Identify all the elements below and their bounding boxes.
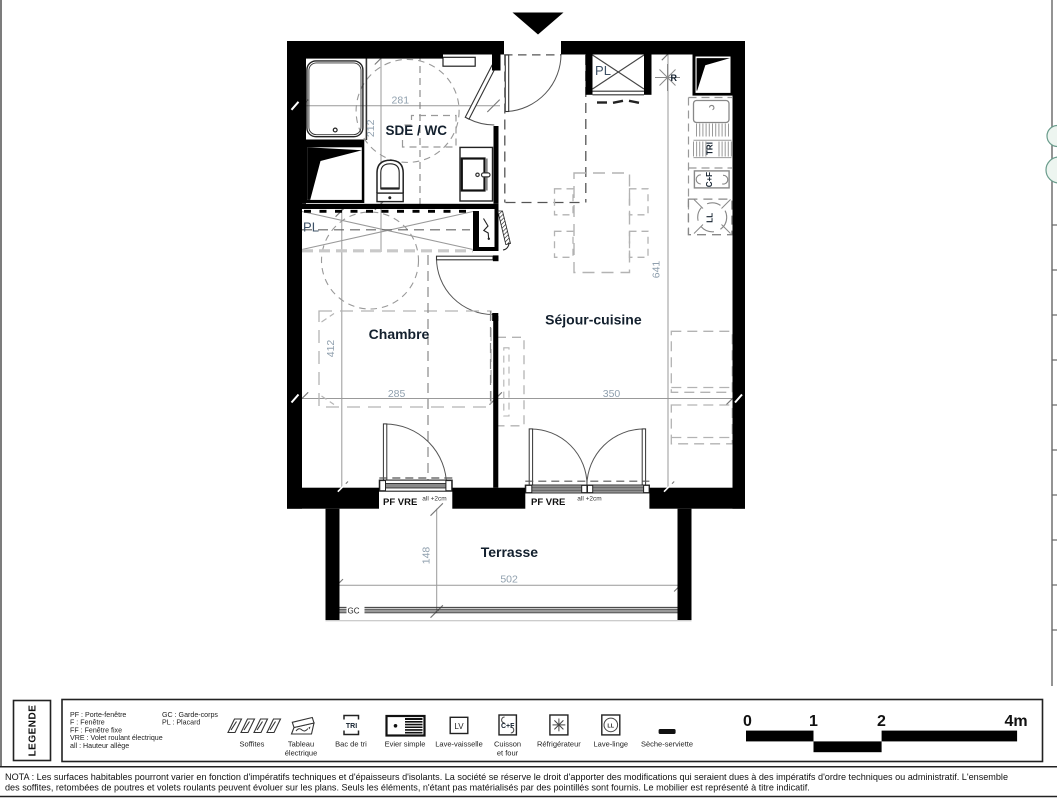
- svg-text:LV: LV: [454, 722, 464, 731]
- svg-text:LEGENDE: LEGENDE: [28, 705, 39, 757]
- svg-text:1: 1: [809, 713, 818, 730]
- svg-text:PF VRE: PF VRE: [383, 497, 417, 508]
- svg-text:C+F: C+F: [501, 723, 515, 730]
- svg-text:et four: et four: [497, 749, 519, 758]
- svg-text:Bac de tri: Bac de tri: [335, 740, 367, 749]
- svg-text:C+F: C+F: [705, 172, 714, 187]
- svg-text:Réfrigérateur: Réfrigérateur: [537, 740, 581, 749]
- svg-text:Sèche-serviette: Sèche-serviette: [641, 740, 693, 749]
- svg-text:Séjour-cuisine: Séjour-cuisine: [545, 311, 642, 327]
- svg-text:212: 212: [365, 119, 377, 137]
- svg-text:Soffites: Soffites: [240, 740, 265, 749]
- svg-text:281: 281: [392, 94, 410, 106]
- svg-text:Evier simple: Evier simple: [385, 740, 426, 749]
- svg-text:all +2cm: all +2cm: [577, 496, 601, 503]
- svg-text:Cuisson: Cuisson: [494, 740, 521, 749]
- svg-text:502: 502: [500, 573, 518, 585]
- svg-text:LL: LL: [706, 213, 715, 223]
- svg-text:des soffites, retombées de pou: des soffites, retombées de poutres et vo…: [5, 782, 810, 792]
- svg-text:TRI: TRI: [346, 723, 357, 730]
- svg-text:SDE / WC: SDE / WC: [385, 123, 447, 138]
- svg-text:PF VRE: PF VRE: [531, 497, 565, 508]
- svg-text:2: 2: [877, 713, 886, 730]
- svg-text:350: 350: [603, 388, 621, 400]
- svg-text:PL : Placard: PL : Placard: [162, 719, 200, 727]
- svg-text:148: 148: [421, 547, 433, 565]
- svg-text:all +2cm: all +2cm: [422, 496, 446, 503]
- svg-text:all : Hauteur allège: all : Hauteur allège: [70, 742, 129, 750]
- svg-text:4m: 4m: [1004, 713, 1027, 730]
- svg-text:Lave-linge: Lave-linge: [593, 740, 628, 749]
- svg-text:électrique: électrique: [285, 749, 318, 758]
- svg-text:GC: GC: [348, 606, 360, 615]
- svg-text:R: R: [671, 73, 678, 83]
- svg-text:PL: PL: [303, 220, 319, 235]
- svg-text:Chambre: Chambre: [369, 326, 430, 342]
- svg-text:NOTA : Les surfaces habitables: NOTA : Les surfaces habitables pourront …: [5, 772, 1008, 782]
- svg-text:285: 285: [388, 388, 406, 400]
- svg-text:Lave-vaisselle: Lave-vaisselle: [435, 740, 483, 749]
- svg-text:641: 641: [650, 261, 662, 279]
- svg-text:412: 412: [325, 340, 337, 358]
- svg-text:LL: LL: [607, 723, 614, 729]
- svg-text:Terrasse: Terrasse: [481, 544, 539, 560]
- svg-text:PL: PL: [595, 63, 611, 78]
- svg-text:TRI: TRI: [706, 142, 715, 155]
- svg-text:Tableau: Tableau: [288, 740, 314, 749]
- svg-text:0: 0: [743, 713, 752, 730]
